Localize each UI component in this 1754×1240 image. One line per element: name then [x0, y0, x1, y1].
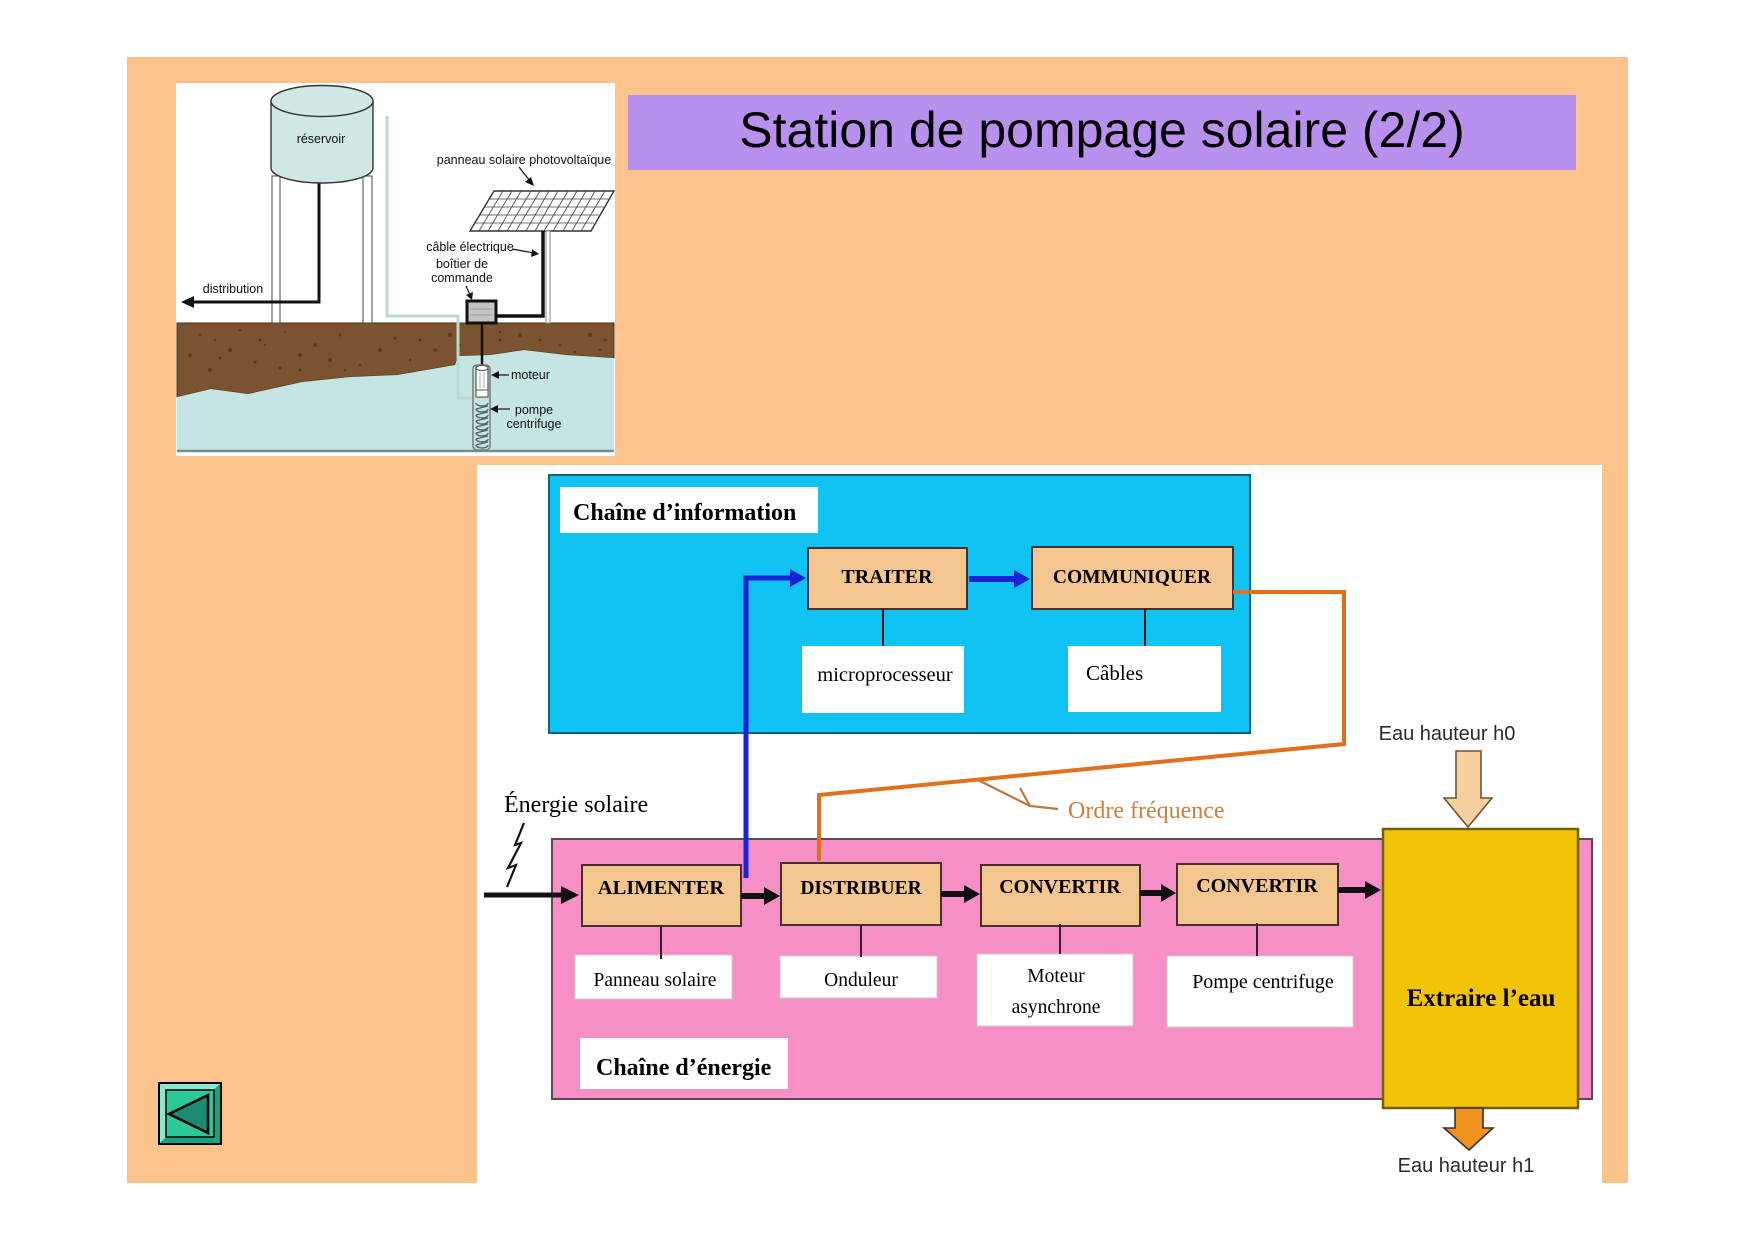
svg-text:panneau solaire photovoltaïque: panneau solaire photovoltaïque — [437, 153, 611, 167]
svg-text:asynchrone: asynchrone — [1012, 997, 1101, 1018]
svg-text:CONVERTIR: CONVERTIR — [999, 876, 1121, 898]
svg-text:commande: commande — [431, 271, 493, 285]
svg-text:CONVERTIR: CONVERTIR — [1196, 875, 1318, 897]
svg-text:pompe: pompe — [515, 403, 553, 417]
svg-text:Chaîne d’énergie: Chaîne d’énergie — [596, 1055, 772, 1081]
svg-text:boîtier de: boîtier de — [436, 257, 488, 271]
svg-text:Eau hauteur h1: Eau hauteur h1 — [1398, 1155, 1535, 1177]
svg-text:Panneau solaire: Panneau solaire — [594, 970, 717, 991]
svg-text:Chaîne d’information: Chaîne d’information — [573, 500, 796, 526]
svg-text:microprocesseur: microprocesseur — [817, 664, 953, 686]
svg-text:Énergie solaire: Énergie solaire — [504, 792, 648, 818]
svg-text:réservoir: réservoir — [297, 132, 346, 146]
svg-text:DISTRIBUER: DISTRIBUER — [800, 878, 922, 899]
svg-text:ALIMENTER: ALIMENTER — [598, 877, 725, 899]
svg-text:distribution: distribution — [203, 282, 263, 296]
svg-text:Onduleur: Onduleur — [824, 970, 898, 991]
svg-text:Extraire l’eau: Extraire l’eau — [1407, 985, 1556, 1012]
svg-text:centrifuge: centrifuge — [507, 417, 562, 431]
svg-text:câble électrique: câble électrique — [426, 240, 514, 254]
svg-text:moteur: moteur — [511, 368, 550, 382]
svg-text:Ordre fréquence: Ordre fréquence — [1068, 798, 1225, 824]
svg-text:Câbles: Câbles — [1086, 661, 1143, 685]
svg-text:COMMUNIQUER: COMMUNIQUER — [1053, 567, 1212, 588]
svg-text:Moteur: Moteur — [1027, 966, 1085, 987]
svg-text:TRAITER: TRAITER — [841, 566, 933, 588]
svg-text:Pompe centrifuge: Pompe centrifuge — [1192, 971, 1334, 993]
svg-text:Eau hauteur h0: Eau hauteur h0 — [1379, 723, 1516, 745]
